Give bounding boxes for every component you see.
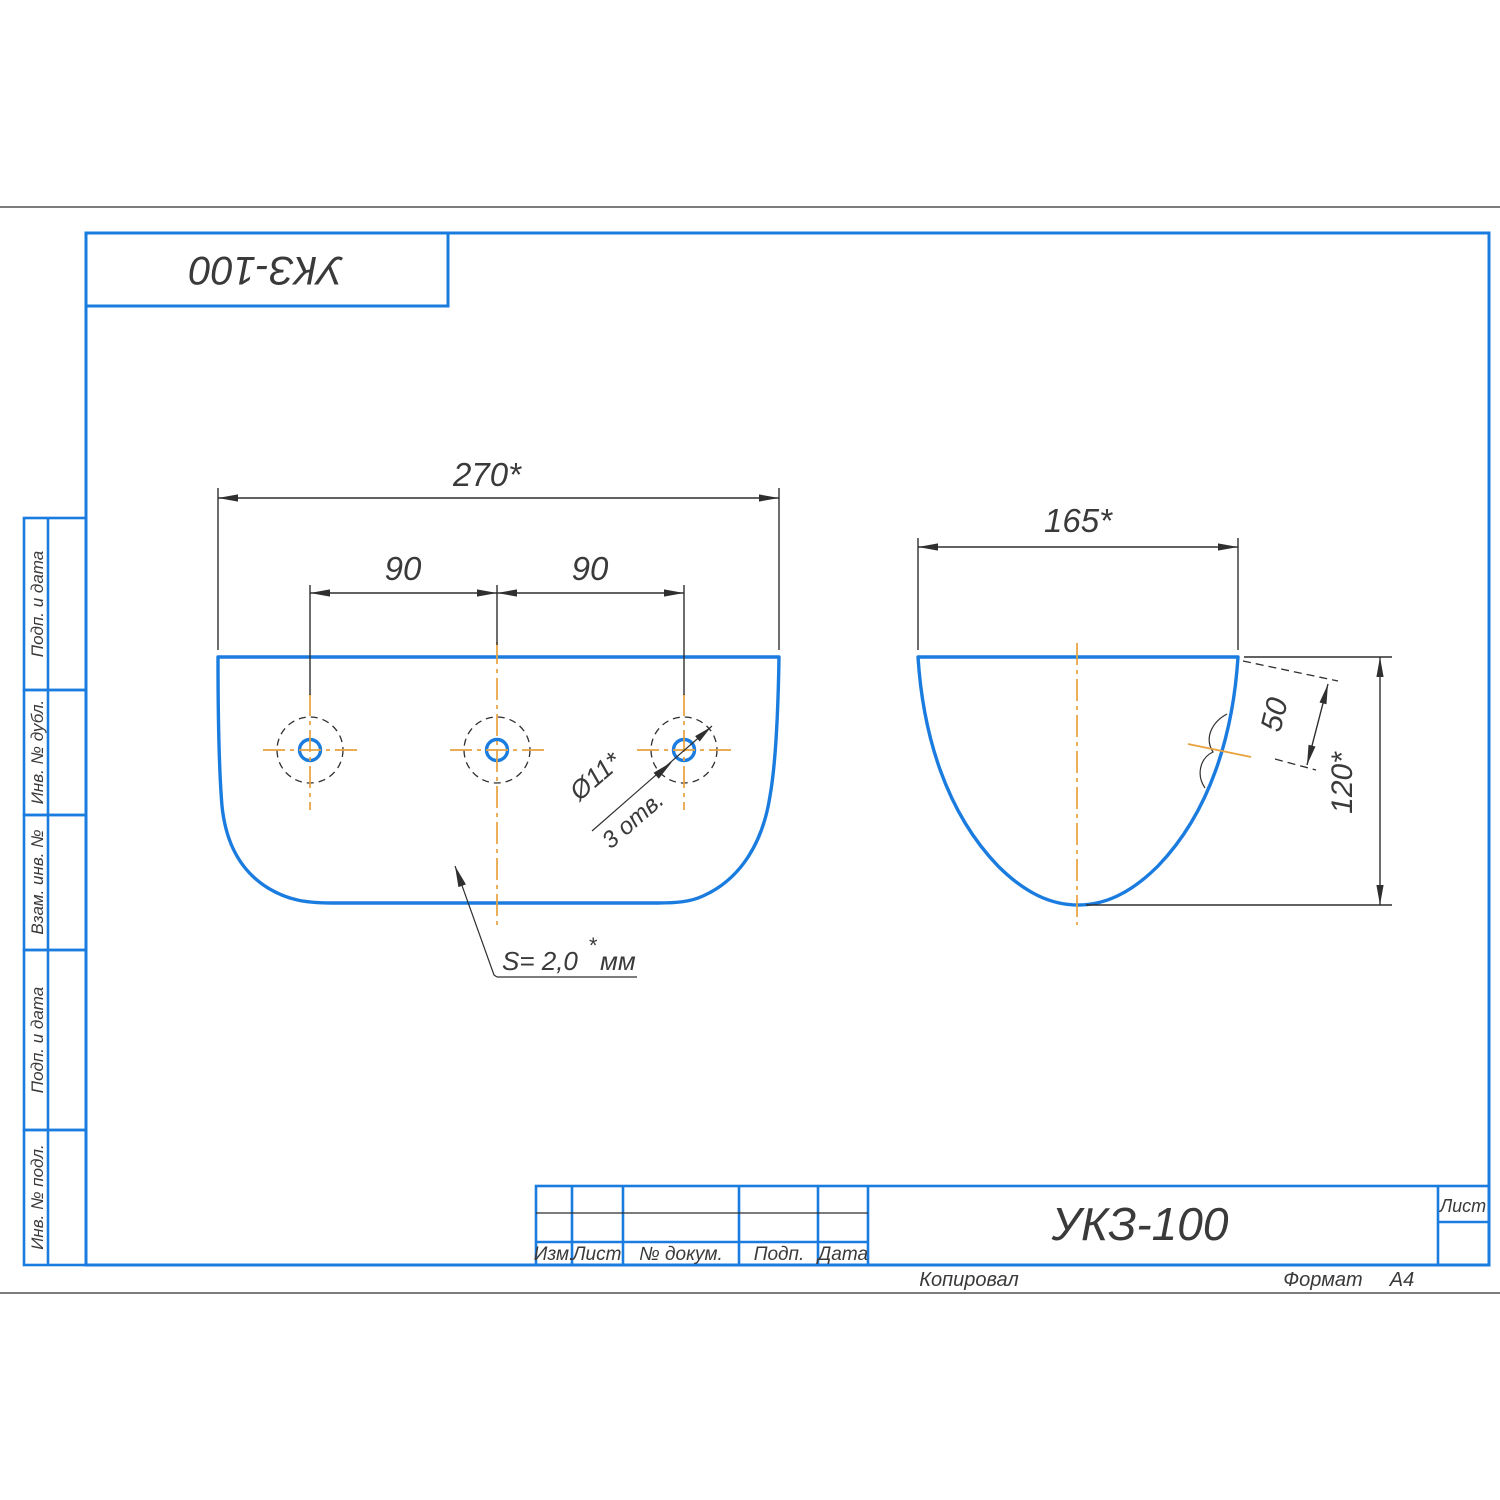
dim-120: 120* bbox=[1086, 657, 1392, 905]
drawing-frame: УКЗ-100 bbox=[86, 233, 1489, 1265]
sheet-cell-label: Лист bbox=[1439, 1196, 1486, 1216]
dim-90-pair: 90 90 bbox=[310, 550, 684, 695]
drawing-sheet: УКЗ-100 Подп. и дата Инв. № дубл. Взам. … bbox=[0, 0, 1500, 1500]
page-rules bbox=[0, 207, 1500, 1293]
dim-165-text: 165* bbox=[1044, 502, 1113, 539]
frame-border bbox=[86, 233, 1489, 1265]
format-label: Формат bbox=[1283, 1269, 1362, 1291]
dim-270-text: 270* bbox=[452, 456, 522, 493]
col-doc-label: № докум. bbox=[639, 1244, 723, 1265]
col-list-label: Лист bbox=[571, 1244, 622, 1265]
front-plate-outline bbox=[218, 657, 779, 903]
format-value: А4 bbox=[1389, 1269, 1414, 1291]
front-view: 270* 90 90 Ø11* 3 отв. bbox=[218, 456, 779, 977]
dim-50-text: 50 bbox=[1255, 694, 1295, 735]
col-data-label: Дата bbox=[816, 1244, 868, 1265]
dim-270: 270* bbox=[218, 456, 779, 650]
dim-90-right-text: 90 bbox=[572, 550, 609, 587]
footer-notes: Копировал Формат А4 bbox=[919, 1269, 1414, 1291]
title-designation: УКЗ-100 bbox=[1051, 1198, 1229, 1250]
side-label-vzam-inv: Взам. инв. № bbox=[28, 829, 47, 934]
drawing-canvas: УКЗ-100 Подп. и дата Инв. № дубл. Взам. … bbox=[0, 0, 1500, 1500]
dim-165: 165* bbox=[918, 502, 1238, 650]
col-izm-label: Изм. bbox=[534, 1244, 575, 1265]
dim-line bbox=[1307, 684, 1328, 765]
dim-90-left-text: 90 bbox=[385, 550, 422, 587]
ext-line-dashed bbox=[1275, 759, 1316, 770]
ext-line-dashed bbox=[1243, 661, 1338, 681]
side-label-podp-data-1: Подп. и дата bbox=[28, 551, 47, 657]
side-view: 165* 120* 50 bbox=[918, 502, 1392, 925]
dim-120-text: 120* bbox=[1326, 751, 1359, 814]
thickness-star: * bbox=[588, 933, 598, 958]
side-profile-outline bbox=[918, 657, 1238, 905]
hole-1 bbox=[263, 694, 357, 810]
thickness-unit: мм bbox=[600, 946, 636, 976]
side-label-inv-dubl: Инв. № дубл. bbox=[28, 700, 47, 805]
leader-arrow bbox=[451, 865, 466, 887]
dim-50: 50 bbox=[1188, 661, 1338, 788]
thickness-callout: S= 2,0 * мм bbox=[451, 865, 637, 977]
top-stamp-designation: УКЗ-100 bbox=[189, 248, 344, 292]
side-label-inv-podl: Инв. № подл. bbox=[28, 1144, 47, 1250]
copied-by-label: Копировал bbox=[919, 1269, 1018, 1291]
side-column: Подп. и дата Инв. № дубл. Взам. инв. № П… bbox=[24, 518, 86, 1265]
hole-callout: Ø11* 3 отв. bbox=[563, 724, 713, 854]
col-podp-label: Подп. bbox=[754, 1244, 805, 1265]
hole-count-note: 3 отв. bbox=[597, 786, 669, 854]
thickness-value: S= 2,0 bbox=[502, 946, 578, 976]
hole-2 bbox=[450, 642, 544, 928]
hole-dia-note: Ø11* bbox=[563, 746, 627, 807]
side-label-podp-data-2: Подп. и дата bbox=[28, 987, 47, 1093]
title-block: Изм. Лист № докум. Подп. Дата УКЗ-100 Ли… bbox=[534, 1186, 1489, 1265]
